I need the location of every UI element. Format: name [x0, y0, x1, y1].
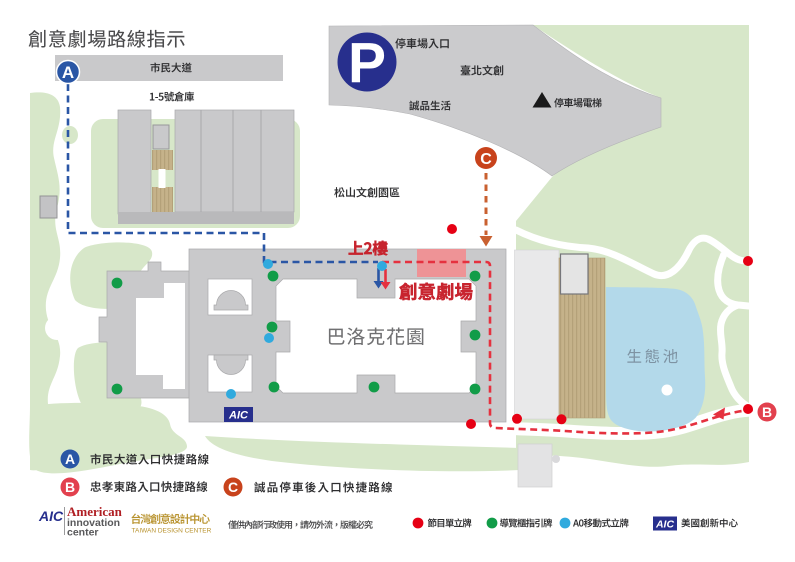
- svg-text:P: P: [348, 31, 386, 95]
- svg-text:center: center: [67, 527, 99, 539]
- svg-text:C: C: [228, 479, 238, 495]
- svg-text:A: A: [65, 451, 75, 467]
- svg-text:B: B: [762, 404, 772, 420]
- svg-text:C: C: [480, 151, 492, 168]
- svg-text:TAIWAN DESIGN CENTER: TAIWAN DESIGN CENTER: [132, 528, 212, 535]
- svg-text:AIC: AIC: [655, 519, 675, 531]
- svg-text:AIC: AIC: [228, 410, 249, 422]
- svg-text:A: A: [62, 63, 74, 82]
- svg-text:B: B: [65, 479, 75, 495]
- svg-text:AIC: AIC: [38, 508, 64, 524]
